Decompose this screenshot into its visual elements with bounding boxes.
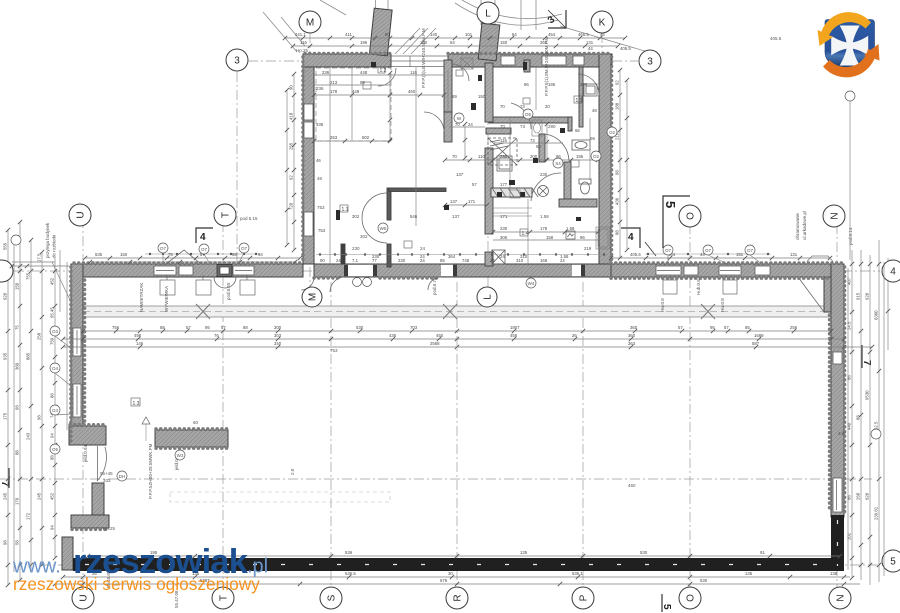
svg-text:138: 138 [830,571,838,576]
svg-text:7: 7 [0,481,10,487]
svg-text:24: 24 [468,122,473,127]
svg-text:448: 448 [352,89,360,94]
svg-text:196: 196 [548,82,556,87]
svg-text:170: 170 [15,497,20,505]
svg-text:pod.0.14: pod.0.14 [848,227,853,245]
svg-text:536: 536 [345,550,353,555]
svg-text:1.2: 1.2 [380,68,387,74]
svg-text:O: O [686,594,697,602]
svg-text:U: U [79,594,90,601]
svg-text:576: 576 [440,578,448,583]
svg-text:755: 755 [26,272,31,280]
svg-text:L: L [483,294,494,300]
svg-text:O7: O7 [201,247,208,252]
svg-text:101: 101 [465,32,473,37]
svg-text:70: 70 [500,104,505,109]
svg-text:91: 91 [760,550,765,555]
svg-text:158: 158 [546,235,554,240]
svg-text:80: 80 [385,32,390,37]
svg-text:360: 360 [630,325,638,330]
svg-text:O7: O7 [747,248,754,253]
svg-text:435: 435 [389,333,397,338]
svg-text:236: 236 [316,86,324,91]
svg-text:3: 3 [234,56,240,67]
svg-text:150: 150 [500,40,508,45]
svg-text:96: 96 [580,235,585,240]
svg-text:20: 20 [545,104,550,109]
svg-text:168: 168 [540,258,548,263]
svg-text:76: 76 [214,333,219,338]
svg-text:98: 98 [37,415,42,420]
svg-text:48: 48 [592,108,597,113]
svg-text:O2: O2 [593,154,600,159]
svg-text:753: 753 [317,205,325,210]
svg-text:253: 253 [330,135,338,140]
svg-text:753: 753 [318,228,326,233]
svg-text:230: 230 [372,254,380,259]
svg-text:88: 88 [856,415,861,420]
svg-text:70: 70 [455,122,460,127]
svg-text:1.58: 1.58 [566,226,575,231]
svg-text:258: 258 [37,332,42,340]
svg-text:256: 256 [790,325,798,330]
svg-text:177: 177 [500,182,508,187]
svg-text:172: 172 [26,512,31,520]
svg-text:3: 3 [647,57,653,68]
svg-text:T: T [221,212,232,218]
svg-text:1.3: 1.3 [576,98,583,104]
svg-text:1.1: 1.1 [342,207,349,213]
svg-text:88: 88 [50,455,55,460]
svg-text:Hp.25: Hp.25 [103,526,116,531]
svg-text:116: 116 [410,70,417,75]
svg-text:230: 230 [540,172,548,177]
svg-text:175: 175 [3,412,8,420]
svg-text:L: L [485,9,491,20]
svg-text:2568: 2568 [430,341,440,346]
svg-text:46: 46 [316,158,321,163]
svg-text:88: 88 [160,325,165,330]
svg-text:720: 720 [289,202,294,210]
svg-text:306: 306 [500,235,508,240]
svg-text:364: 364 [448,254,456,259]
svg-text:236: 236 [322,70,330,75]
svg-text:Hp.25: Hp.25 [296,48,309,53]
svg-text:26: 26 [572,333,577,338]
svg-text:U: U [76,211,87,218]
svg-text:290: 290 [548,124,556,129]
svg-text:pod 5.15: pod 5.15 [240,216,258,221]
svg-text:310: 310 [520,254,528,259]
svg-text:92: 92 [289,175,294,180]
svg-text:94: 94 [50,433,55,438]
svg-text:1689: 1689 [754,333,764,338]
svg-text:73: 73 [530,138,535,143]
svg-text:obramowanie: obramowanie [795,212,800,240]
svg-text:620: 620 [865,492,870,500]
svg-text:85: 85 [745,325,750,330]
svg-text:536.5: 536.5 [345,571,356,576]
svg-text:920: 920 [3,292,8,300]
svg-text:703: 703 [410,325,418,330]
svg-text:O4: O4 [52,408,59,413]
svg-text:M: M [306,18,314,29]
svg-text:460: 460 [408,89,416,94]
svg-text:915: 915 [856,292,861,300]
svg-text:R: R [453,594,464,601]
svg-text:58: 58 [15,540,20,545]
svg-text:460: 460 [628,483,636,488]
svg-text:137: 137 [452,214,460,219]
svg-text:68: 68 [232,252,237,257]
svg-text:418: 418 [289,112,294,120]
svg-text:95.45: 95.45 [50,307,55,318]
svg-text:9530: 9530 [865,390,870,400]
svg-text:94: 94 [50,525,55,530]
svg-text:P.P.P.5ZHB0+28.5MWK.PM: P.P.P.5ZHB0+28.5MWK.PM [148,443,153,499]
svg-text:NAWIETRZAK: NAWIETRZAK [139,283,144,312]
svg-text:303: 303 [274,333,282,338]
svg-text:436: 436 [615,197,620,205]
svg-text:86: 86 [847,495,852,500]
svg-text:405.5: 405.5 [770,36,782,41]
svg-text:241.1: 241.1 [295,32,306,37]
svg-text:920: 920 [865,292,870,300]
svg-text:146: 146 [136,341,144,346]
svg-text:90: 90 [289,85,294,90]
svg-text:P.P.P.(5)LB.W9+240.5DM.P.M: P.P.P.(5)LB.W9+240.5DM.P.M [421,28,426,88]
svg-text:150: 150 [478,94,486,99]
svg-text:86: 86 [536,144,542,149]
svg-text:302: 302 [360,234,368,239]
svg-text:219: 219 [584,246,592,251]
svg-text:46: 46 [317,176,323,181]
svg-text:456: 456 [510,333,518,338]
svg-text:M: M [308,293,319,301]
svg-text:440: 440 [847,422,852,430]
svg-text:Hub.0.8: Hub.0.8 [696,279,701,295]
svg-text:5: 5 [661,604,672,610]
svg-text:454: 454 [548,32,556,37]
svg-text:57: 57 [472,182,477,187]
svg-text:57: 57 [186,325,191,330]
svg-text:88: 88 [615,230,620,235]
svg-text:T: T [219,595,230,601]
svg-text:7.1: 7.1 [352,258,359,263]
svg-text:96: 96 [590,136,596,141]
svg-text:O7: O7 [665,248,672,253]
svg-text:131: 131 [790,252,798,257]
svg-text:405.5: 405.5 [630,252,641,257]
svg-text:440: 440 [838,431,846,436]
svg-text:360: 360 [628,333,636,338]
svg-text:95: 95 [360,80,365,85]
svg-text:196: 196 [360,40,368,45]
svg-text:N: N [836,594,847,601]
svg-text:188: 188 [615,102,620,110]
svg-text:K: K [599,18,606,29]
svg-text:178: 178 [540,226,548,231]
svg-text:95: 95 [710,325,715,330]
svg-text:94: 94 [258,252,263,257]
svg-text:Hw.0.8: Hw.0.8 [660,298,665,312]
svg-text:465.5: 465.5 [578,32,589,37]
svg-text:546: 546 [410,214,418,219]
svg-text:135: 135 [520,550,528,555]
svg-text:70: 70 [500,124,506,129]
svg-text:do rozbiorki: do rozbiorki [52,235,57,258]
svg-text:448: 448 [360,70,368,75]
svg-text:536.1: 536.1 [572,571,583,576]
svg-text:360: 360 [15,362,20,370]
svg-text:30: 30 [448,571,453,576]
svg-text:73: 73 [520,104,525,109]
svg-text:98: 98 [15,405,20,410]
svg-text:O: O [686,212,697,220]
svg-text:452: 452 [50,492,55,500]
svg-text:86: 86 [847,375,852,380]
svg-text:230: 230 [398,258,406,263]
svg-text:Hw.0.8: Hw.0.8 [720,298,725,312]
svg-text:WYWIEWKA: WYWIEWKA [164,286,169,312]
svg-text:73: 73 [520,124,526,129]
svg-text:DH: DH [119,474,126,479]
svg-text:90: 90 [320,258,325,263]
svg-text:530: 530 [700,578,708,583]
svg-text:24: 24 [420,246,426,251]
svg-text:535: 535 [95,252,103,257]
svg-text:530: 530 [356,325,364,330]
svg-text:450: 450 [436,333,444,338]
svg-text:213: 213 [330,80,338,85]
svg-text:137: 137 [456,172,464,177]
svg-text:O3: O3 [52,329,59,334]
svg-text:753: 753 [330,348,338,353]
svg-text:243: 243 [26,432,31,440]
svg-text:75: 75 [168,252,173,257]
svg-text:4: 4 [200,232,206,243]
svg-text:O7: O7 [705,248,712,253]
svg-text:245: 245 [3,492,8,500]
svg-text:255: 255 [289,142,294,150]
svg-text:171: 171 [500,214,508,219]
svg-text:24: 24 [490,258,495,263]
svg-text:69: 69 [452,94,457,99]
svg-text:rzeszowski serwis ogłoszeniowy: rzeszowski serwis ogłoszeniowy [13,574,260,594]
svg-text:O2: O2 [609,130,616,135]
svg-text:86: 86 [524,82,529,87]
svg-text:2.0: 2.0 [290,468,295,475]
svg-text:407: 407 [847,277,852,285]
svg-text:150: 150 [15,282,20,290]
svg-text:116: 116 [300,40,307,45]
svg-text:95+45: 95+45 [100,471,113,476]
svg-text:5: 5 [890,557,896,568]
svg-text:P: P [579,594,590,601]
svg-text:363: 363 [628,341,636,346]
svg-text:66: 66 [575,128,580,133]
svg-text:498: 498 [134,333,142,338]
svg-text:pod.0.75: pod.0.75 [432,277,437,295]
svg-text:O4: O4 [52,366,59,371]
svg-text:przylega budynek: przylega budynek [45,222,50,258]
svg-text:17.5: 17.5 [37,253,42,262]
svg-text:57: 57 [724,325,729,330]
svg-text:75: 75 [15,325,20,330]
svg-text:268: 268 [856,492,861,500]
svg-text:110: 110 [478,154,485,159]
svg-text:452: 452 [50,277,55,285]
svg-text:P.P.P.5(1).8M.9+240.50M.P.M: P.P.P.5(1).8M.9+240.50M.P.M [544,37,549,96]
svg-text:88: 88 [15,450,20,455]
svg-text:1.58: 1.58 [560,254,569,259]
svg-text:95: 95 [205,325,210,330]
svg-text:333: 333 [103,478,111,483]
svg-text:98: 98 [3,540,8,545]
svg-text:340: 340 [274,341,282,346]
svg-text:jeld.0.94: jeld.0.94 [83,444,88,463]
svg-text:885: 885 [26,352,31,360]
svg-text:W4: W4 [528,281,535,286]
svg-text:587: 587 [752,341,760,346]
svg-text:300: 300 [274,325,282,330]
svg-text:151: 151 [736,252,744,257]
svg-text:137: 137 [450,199,458,204]
svg-text:24.5: 24.5 [847,321,852,330]
svg-text:1.3: 1.3 [133,401,140,407]
svg-text:178: 178 [330,89,338,94]
svg-text:140: 140 [430,32,438,37]
svg-text:88: 88 [50,393,55,398]
svg-text:131: 131 [586,40,594,45]
svg-text:171: 171 [468,199,476,204]
svg-text:135: 135 [745,571,753,576]
svg-text:405.5: 405.5 [620,46,631,51]
svg-text:24: 24 [420,254,425,259]
svg-text:555: 555 [3,242,8,250]
svg-text:60: 60 [193,420,199,425]
svg-text:O5: O5 [525,112,532,117]
svg-text:S: S [327,594,338,601]
svg-text:O7: O7 [160,246,167,251]
svg-text:70: 70 [452,154,457,159]
svg-text:4: 4 [628,232,634,243]
svg-text:411: 411 [345,32,352,37]
svg-text:W5: W5 [380,226,387,231]
svg-text:150: 150 [120,252,128,257]
svg-text:230: 230 [352,246,360,251]
svg-text:230: 230 [500,226,508,231]
svg-text:5: 5 [663,201,678,208]
svg-text:245: 245 [37,492,42,500]
svg-text:196: 196 [576,154,584,159]
svg-text:98: 98 [615,170,620,175]
svg-text:S4: S4 [555,161,561,166]
svg-text:239.81: 239.81 [874,506,879,520]
svg-text:502: 502 [362,135,370,140]
svg-text:44: 44 [588,46,593,51]
svg-text:530: 530 [640,550,648,555]
svg-text:84: 84 [512,32,517,37]
svg-text:57: 57 [221,325,226,330]
svg-text:N: N [830,212,841,219]
svg-text:6360: 6360 [874,310,879,320]
svg-text:O5: O5 [52,447,59,452]
svg-text:290: 290 [500,154,508,159]
svg-text:O7: O7 [241,246,248,251]
svg-text:64: 64 [450,40,455,45]
svg-text:88: 88 [243,325,248,330]
svg-text:ul.arkadowe.pl: ul.arkadowe.pl [802,211,807,240]
svg-text:438: 438 [316,122,324,127]
svg-text:756: 756 [112,325,120,330]
svg-text:4: 4 [890,267,896,278]
svg-text:85: 85 [440,258,445,263]
svg-text:24: 24 [336,258,341,263]
svg-text:116: 116 [500,138,507,143]
svg-text:306: 306 [580,82,588,87]
svg-text:7: 7 [861,360,872,366]
svg-text:750: 750 [50,337,55,345]
svg-text:202: 202 [847,532,852,540]
svg-text:W3: W3 [177,453,184,458]
svg-text:57: 57 [678,325,683,330]
svg-text:748: 748 [462,258,470,263]
svg-text:302: 302 [352,214,360,219]
svg-text:1.58: 1.58 [540,214,549,219]
svg-text:1807: 1807 [510,325,520,330]
svg-text:pod.0.55: pod.0.55 [226,282,231,300]
svg-text:24: 24 [500,254,505,259]
svg-text:935: 935 [3,352,8,360]
svg-text:92: 92 [615,80,620,85]
